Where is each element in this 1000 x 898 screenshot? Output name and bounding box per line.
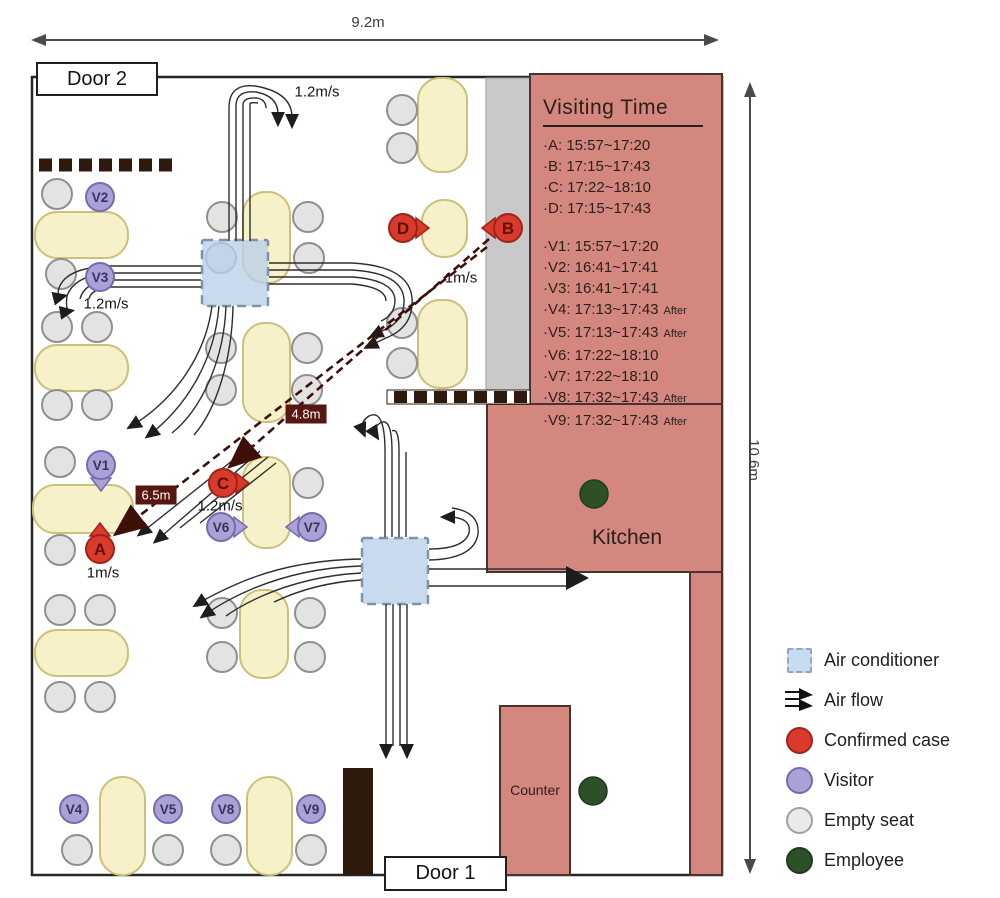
legend-item-confirmed-case: Confirmed case [782, 726, 997, 754]
empty-seat [207, 642, 237, 672]
visiting-time-entry-v7: ·V7: 17:22~18:10 [543, 366, 719, 387]
marker-label: V4 [66, 802, 83, 817]
empty-seat [387, 95, 417, 125]
marker-label: A [94, 540, 106, 559]
visiting-time-entry-b: ·B: 17:15~17:43 [543, 156, 719, 177]
empty-seat [62, 835, 92, 865]
empty-seat [45, 682, 75, 712]
empty-seat [292, 333, 322, 363]
employee-marker [579, 777, 607, 805]
dining-table [35, 345, 128, 391]
visiting-time-entry-text: ·V3: 16:41~17:41 [543, 280, 659, 297]
empty-seat [293, 202, 323, 232]
counter-label: Counter [500, 782, 570, 798]
visitor-icon [786, 767, 813, 794]
air-speed-label: 1.2m/s [294, 84, 339, 101]
visiting-time-entry-text: ·V5: 17:13~17:43 [543, 324, 659, 341]
visiting-time-entry-c: ·C: 17:22~18:10 [543, 177, 719, 198]
legend-item-air-flow: Air flow [782, 686, 997, 714]
legend-item-employee: Employee [782, 846, 997, 874]
confirmed-case-icon [786, 727, 813, 754]
marker-label: V3 [92, 270, 109, 285]
legend-label: Visitor [824, 770, 874, 791]
marker-label: C [217, 474, 229, 493]
air-conditioner-icon [782, 648, 816, 673]
air-conditioner-2 [362, 538, 428, 604]
empty-seat [207, 202, 237, 232]
empty-seat [82, 390, 112, 420]
employee-marker [580, 480, 608, 508]
visiting-time-title: Visiting Time [543, 96, 719, 120]
visiting-time-visitors-list: ·V1: 15:57~17:20·V2: 16:41~17:41·V3: 16:… [543, 236, 719, 433]
after-closing-tag: After [664, 393, 687, 405]
marker-label: V7 [304, 520, 321, 535]
empty-seat [296, 835, 326, 865]
door-2-text: Door 2 [67, 68, 127, 91]
empty-seat [45, 595, 75, 625]
employee-icon [786, 847, 813, 874]
empty-seat [42, 312, 72, 342]
empty-seat [45, 535, 75, 565]
dining-table [33, 485, 133, 533]
legend-label: Air flow [824, 690, 883, 711]
empty-seat [293, 468, 323, 498]
visiting-time-entry-text: ·V2: 16:41~17:41 [543, 259, 659, 276]
visiting-time-entry-v3: ·V3: 16:41~17:41 [543, 278, 719, 299]
empty-seat [42, 179, 72, 209]
visiting-time-entry-v6: ·V6: 17:22~18:10 [543, 345, 719, 366]
marker-label: V6 [213, 520, 230, 535]
empty-seat [387, 348, 417, 378]
visitor-v3: V3 [86, 263, 114, 291]
empty-seat-icon [786, 807, 813, 834]
visiting-time-entry-v4: ·V4: 17:13~17:43After [543, 299, 719, 322]
visitor-v5: V5 [154, 795, 182, 823]
legend-label: Confirmed case [824, 730, 950, 751]
empty-seat [45, 447, 75, 477]
marker-label: V5 [160, 802, 177, 817]
visiting-time-entry-text: ·V7: 17:22~18:10 [543, 368, 659, 385]
door-1-label: Door 1 [384, 856, 507, 891]
legend: Air conditionerAir flowConfirmed caseVis… [782, 646, 997, 874]
visitor-v9: V9 [297, 795, 325, 823]
dining-table [35, 212, 128, 258]
visiting-time-cases-list: ·A: 15:57~17:20·B: 17:15~17:43·C: 17:22~… [543, 135, 719, 219]
visiting-time-entry-v1: ·V1: 15:57~17:20 [543, 236, 719, 257]
visiting-time-entry-text: ·V1: 15:57~17:20 [543, 238, 659, 255]
visiting-time-entry-text: ·C: 17:22~18:10 [543, 179, 651, 196]
empty-seat [85, 682, 115, 712]
visiting-time-entry-text: ·V9: 17:32~17:43 [543, 412, 659, 429]
empty-seat [295, 642, 325, 672]
employee-icon [782, 847, 816, 874]
air-speed-label: 1m/s [87, 565, 120, 582]
visiting-time-entry-v8: ·V8: 17:32~17:43After [543, 387, 719, 410]
width-dimension-label: 9.2m [330, 14, 406, 31]
empty-seat [295, 598, 325, 628]
air-flow-glyph [783, 687, 815, 713]
visitor-icon [782, 767, 816, 794]
visiting-time-entry-a: ·A: 15:57~17:20 [543, 135, 719, 156]
visiting-time-entry-text: ·D: 17:15~17:43 [543, 200, 651, 217]
empty-seat [211, 835, 241, 865]
marker-label: V8 [218, 802, 235, 817]
visiting-time-entry-text: ·A: 15:57~17:20 [543, 137, 650, 154]
visiting-time-entry-v9: ·V9: 17:32~17:43After [543, 410, 719, 433]
legend-label: Air conditioner [824, 650, 939, 671]
door-1-text: Door 1 [415, 862, 475, 885]
entrance-wall-block [343, 768, 373, 875]
empty-seat [82, 312, 112, 342]
legend-item-air-conditioner: Air conditioner [782, 646, 997, 674]
dining-table [243, 323, 290, 422]
partition-checkered [387, 390, 530, 404]
empty-seat [153, 835, 183, 865]
height-dimension-label: 10.6m [742, 430, 762, 490]
after-closing-tag: After [664, 328, 687, 340]
marker-label: D [397, 219, 409, 238]
marker-label: B [502, 219, 514, 238]
legend-item-empty-seat: Empty seat [782, 806, 997, 834]
air-conditioner-swatch [787, 648, 812, 673]
marker-label: V9 [303, 802, 320, 817]
dining-table [35, 630, 128, 676]
dining-table [418, 300, 467, 388]
visiting-time-entry-v2: ·V2: 16:41~17:41 [543, 257, 719, 278]
visiting-time-entry-text: ·V6: 17:22~18:10 [543, 347, 659, 364]
visitor-v2: V2 [86, 183, 114, 211]
visiting-time-panel: Visiting Time ·A: 15:57~17:20·B: 17:15~1… [543, 96, 719, 433]
empty-seat [387, 133, 417, 163]
after-closing-tag: After [664, 416, 687, 428]
distance-label: 6.5m [136, 486, 177, 505]
empty-seat-icon [782, 807, 816, 834]
after-closing-tag: After [664, 305, 687, 317]
dining-table [418, 78, 467, 172]
marker-label: V2 [92, 190, 109, 205]
visiting-time-entry-d: ·D: 17:15~17:43 [543, 198, 719, 219]
visiting-time-entry-text: ·V8: 17:32~17:43 [543, 389, 659, 406]
legend-label: Empty seat [824, 810, 914, 831]
kitchen-label: Kitchen [557, 526, 697, 550]
dining-table [100, 777, 145, 875]
empty-seat [42, 390, 72, 420]
legend-label: Employee [824, 850, 904, 871]
visitor-v4: V4 [60, 795, 88, 823]
empty-seat [294, 243, 324, 273]
air-speed-label: 1m/s [445, 270, 478, 287]
empty-seat [85, 595, 115, 625]
marker-label: V1 [93, 458, 110, 473]
visiting-time-entry-text: ·B: 17:15~17:43 [543, 158, 650, 175]
distance-label: 4.8m [286, 405, 327, 424]
visitor-v8: V8 [212, 795, 240, 823]
door-2-label: Door 2 [36, 62, 158, 96]
visiting-time-underline [543, 125, 703, 127]
visiting-time-entry-v5: ·V5: 17:13~17:43After [543, 322, 719, 345]
air-speed-label: 1.2m/s [83, 296, 128, 313]
kitchen-wall-strip [690, 572, 722, 875]
restaurant-airflow-diagram: ABCDV1V2V3V4V5V6V7V8V9 Door 2 Door 1 Vis… [0, 0, 1000, 898]
empty-seat [207, 598, 237, 628]
air-conditioner-1 [202, 240, 268, 306]
air-speed-label: 1.2m/s [197, 498, 242, 515]
air-flow-icon [782, 687, 816, 713]
legend-item-visitor: Visitor [782, 766, 997, 794]
dining-table [247, 777, 292, 875]
width-dimension-arrow [31, 34, 719, 46]
visiting-time-entry-text: ·V4: 17:13~17:43 [543, 301, 659, 318]
confirmed-case-icon [782, 727, 816, 754]
